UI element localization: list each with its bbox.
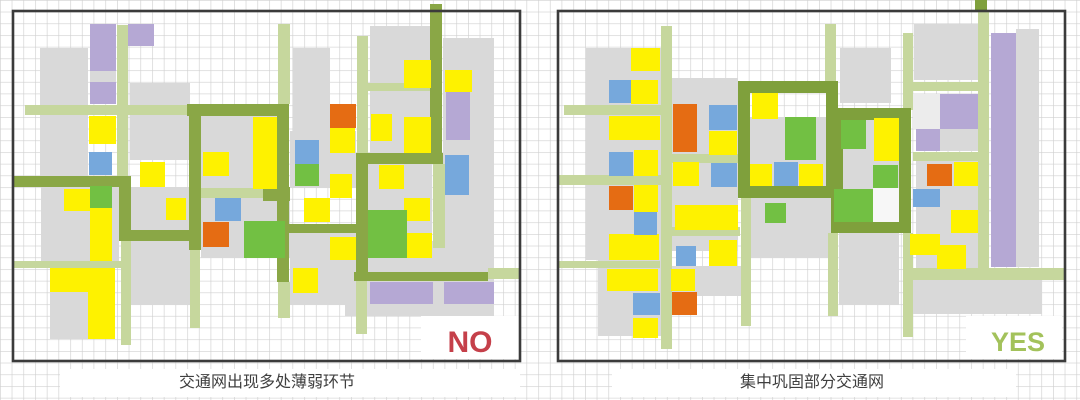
svg-text:交通网出现多处薄弱环节: 交通网出现多处薄弱环节 (179, 373, 355, 391)
svg-text:NO: NO (448, 326, 493, 359)
svg-text:YES: YES (991, 327, 1045, 357)
svg-text:集中巩固部分交通网: 集中巩固部分交通网 (740, 373, 884, 391)
